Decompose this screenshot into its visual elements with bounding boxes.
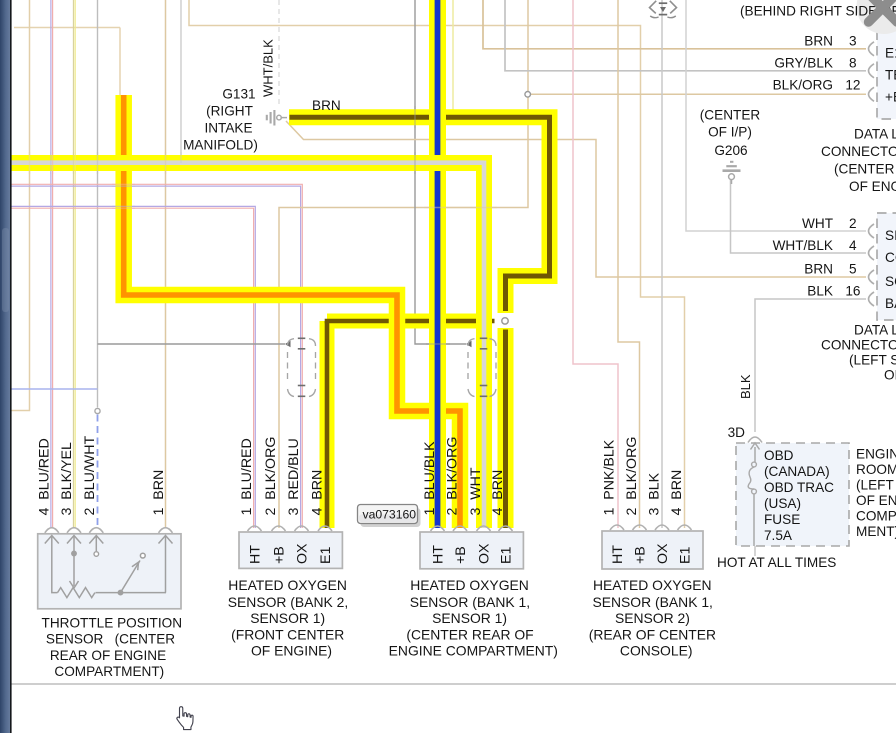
svg-text:HEATED OXYGEN: HEATED OXYGEN <box>593 577 712 593</box>
svg-text:SG: SG <box>885 274 896 289</box>
svg-text:OBD TRAC: OBD TRAC <box>764 480 834 495</box>
svg-text:BRN: BRN <box>312 98 341 113</box>
svg-text:BRN: BRN <box>804 33 833 48</box>
svg-text:COMPA: COMPA <box>856 509 896 524</box>
svg-text:THROTTLE POSITION: THROTTLE POSITION <box>42 616 182 631</box>
svg-text:HT: HT <box>431 545 447 564</box>
svg-text:SIO: SIO <box>885 228 896 243</box>
svg-text:2 BLK/ORG: 2 BLK/ORG <box>445 437 461 516</box>
svg-text:(FRONT CENTER: (FRONT CENTER <box>231 626 344 642</box>
svg-text:4: 4 <box>849 238 857 253</box>
svg-text:ENGINE COMPARTMENT): ENGINE COMPARTMENT) <box>389 642 558 658</box>
svg-text:+B: +B <box>272 546 288 564</box>
svg-text:16: 16 <box>845 283 860 298</box>
svg-text:2 BLU/WHT: 2 BLU/WHT <box>82 436 98 516</box>
svg-text:BLK: BLK <box>807 283 833 298</box>
svg-text:1 BLU/RED: 1 BLU/RED <box>239 438 255 515</box>
svg-text:WHT/BLK: WHT/BLK <box>773 238 833 253</box>
svg-text:OF ENGINE: OF ENGINE <box>884 368 896 383</box>
svg-text:1 PNK/BLK: 1 PNK/BLK <box>602 439 618 515</box>
svg-text:+B: +B <box>453 546 469 564</box>
svg-text:OX: OX <box>655 543 671 564</box>
svg-text:WHT: WHT <box>802 216 833 231</box>
svg-text:4 BRN: 4 BRN <box>669 470 685 516</box>
svg-text:8: 8 <box>849 55 857 70</box>
svg-text:HT: HT <box>610 545 626 564</box>
svg-text:WHT/BLK: WHT/BLK <box>261 39 276 97</box>
svg-text:E1: E1 <box>318 547 334 564</box>
svg-text:SENSOR (BANK 2,: SENSOR (BANK 2, <box>228 594 348 610</box>
svg-text:(LEFT: (LEFT <box>856 478 894 493</box>
svg-text:SENSOR (BANK 1,: SENSOR (BANK 1, <box>410 594 530 610</box>
svg-text:HEATED OXYGEN: HEATED OXYGEN <box>410 577 529 593</box>
svg-text:5: 5 <box>849 261 857 276</box>
svg-text:GRY/BLK: GRY/BLK <box>774 55 833 70</box>
svg-text:OF ENG: OF ENG <box>856 493 896 508</box>
svg-text:FUSE: FUSE <box>764 512 800 527</box>
svg-text:(REAR OF CENTER: (REAR OF CENTER <box>589 626 716 642</box>
svg-text:SENSOR 2): SENSOR 2) <box>615 610 690 626</box>
svg-text:(USA): (USA) <box>764 496 801 511</box>
svg-text:+B: +B <box>885 90 896 105</box>
svg-text:3: 3 <box>849 33 857 48</box>
svg-text:(CENTER: (CENTER <box>700 107 761 122</box>
svg-text:12: 12 <box>845 77 860 92</box>
svg-text:2: 2 <box>849 216 857 231</box>
svg-text:3 BLK: 3 BLK <box>647 472 663 515</box>
svg-text:INTAKE: INTAKE <box>204 120 252 135</box>
svg-text:CONSOLE): CONSOLE) <box>620 642 693 658</box>
svg-text:OF I/P): OF I/P) <box>708 124 752 139</box>
svg-text:(CANADA): (CANADA) <box>764 464 830 479</box>
svg-text:CG: CG <box>885 250 896 265</box>
svg-text:(RIGHT: (RIGHT <box>206 103 253 118</box>
svg-text:DATA LINK: DATA LINK <box>854 323 896 338</box>
svg-text:2 BLK/ORG: 2 BLK/ORG <box>263 437 279 516</box>
svg-text:G131: G131 <box>222 86 255 101</box>
svg-text:4 BRN: 4 BRN <box>310 470 326 516</box>
svg-text:+B: +B <box>633 546 649 564</box>
svg-text:1 BLU/BLK: 1 BLU/BLK <box>422 441 438 516</box>
svg-text:(CENTER REAR OF: (CENTER REAR OF <box>406 626 533 642</box>
svg-text:SENSOR 1): SENSOR 1) <box>432 610 507 626</box>
svg-text:REAR OF ENGINE: REAR OF ENGINE <box>50 648 166 663</box>
svg-text:BLK: BLK <box>738 374 753 399</box>
svg-text:1 BRN: 1 BRN <box>151 470 167 516</box>
svg-text:HEATED OXYGEN: HEATED OXYGEN <box>228 577 347 593</box>
svg-text:BRN: BRN <box>804 261 833 276</box>
svg-text:3 BLK/YEL: 3 BLK/YEL <box>59 442 75 515</box>
svg-text:MENT): MENT) <box>856 524 896 539</box>
svg-text:OBD: OBD <box>764 448 794 463</box>
svg-text:2 BLK/ORG: 2 BLK/ORG <box>624 437 640 516</box>
svg-text:3 WHT: 3 WHT <box>468 467 484 515</box>
svg-text:SENSOR (CENTER: SENSOR (CENTER <box>46 632 175 647</box>
svg-text:CONNECTOR 1: CONNECTOR 1 <box>821 144 896 159</box>
svg-text:E1: E1 <box>885 46 896 61</box>
svg-text:SENSOR 1): SENSOR 1) <box>250 610 325 626</box>
svg-text:4 BLU/RED: 4 BLU/RED <box>36 438 52 515</box>
svg-text:E1: E1 <box>499 547 515 564</box>
svg-text:G206: G206 <box>714 143 747 158</box>
svg-text:ENGINE: ENGINE <box>856 447 896 462</box>
svg-text:(LEFT SIDE: (LEFT SIDE <box>849 353 896 368</box>
svg-text:BAT: BAT <box>885 296 896 311</box>
svg-text:MANIFOLD): MANIFOLD) <box>183 137 258 152</box>
svg-text:COMPARTMENT): COMPARTMENT) <box>54 664 164 679</box>
svg-text:OF ENGINE): OF ENGINE) <box>251 642 332 658</box>
svg-text:OX: OX <box>477 543 493 564</box>
svg-text:4 BRN: 4 BRN <box>490 470 506 516</box>
svg-text:3 RED/BLU: 3 RED/BLU <box>286 438 302 515</box>
svg-text:TE: TE <box>885 68 896 83</box>
svg-text:OF ENGINE: OF ENGINE <box>849 179 896 194</box>
svg-text:ROOM: ROOM <box>856 462 896 477</box>
svg-text:3D: 3D <box>728 425 746 440</box>
svg-text:OX: OX <box>295 543 311 564</box>
svg-text:HT: HT <box>248 545 264 564</box>
svg-text:CONNECTOR 2: CONNECTOR 2 <box>821 338 896 353</box>
svg-text:(CENTER RIGHT: (CENTER RIGHT <box>834 162 896 177</box>
svg-text:SENSOR (BANK 1,: SENSOR (BANK 1, <box>592 594 712 610</box>
svg-text:E1: E1 <box>678 547 694 564</box>
svg-text:HOT AT ALL TIMES: HOT AT ALL TIMES <box>717 555 836 570</box>
svg-text:DATA LINK: DATA LINK <box>854 127 896 142</box>
svg-text:BLK/ORG: BLK/ORG <box>773 77 833 92</box>
svg-text:va073160: va073160 <box>363 508 417 522</box>
svg-text:7.5A: 7.5A <box>764 528 793 543</box>
